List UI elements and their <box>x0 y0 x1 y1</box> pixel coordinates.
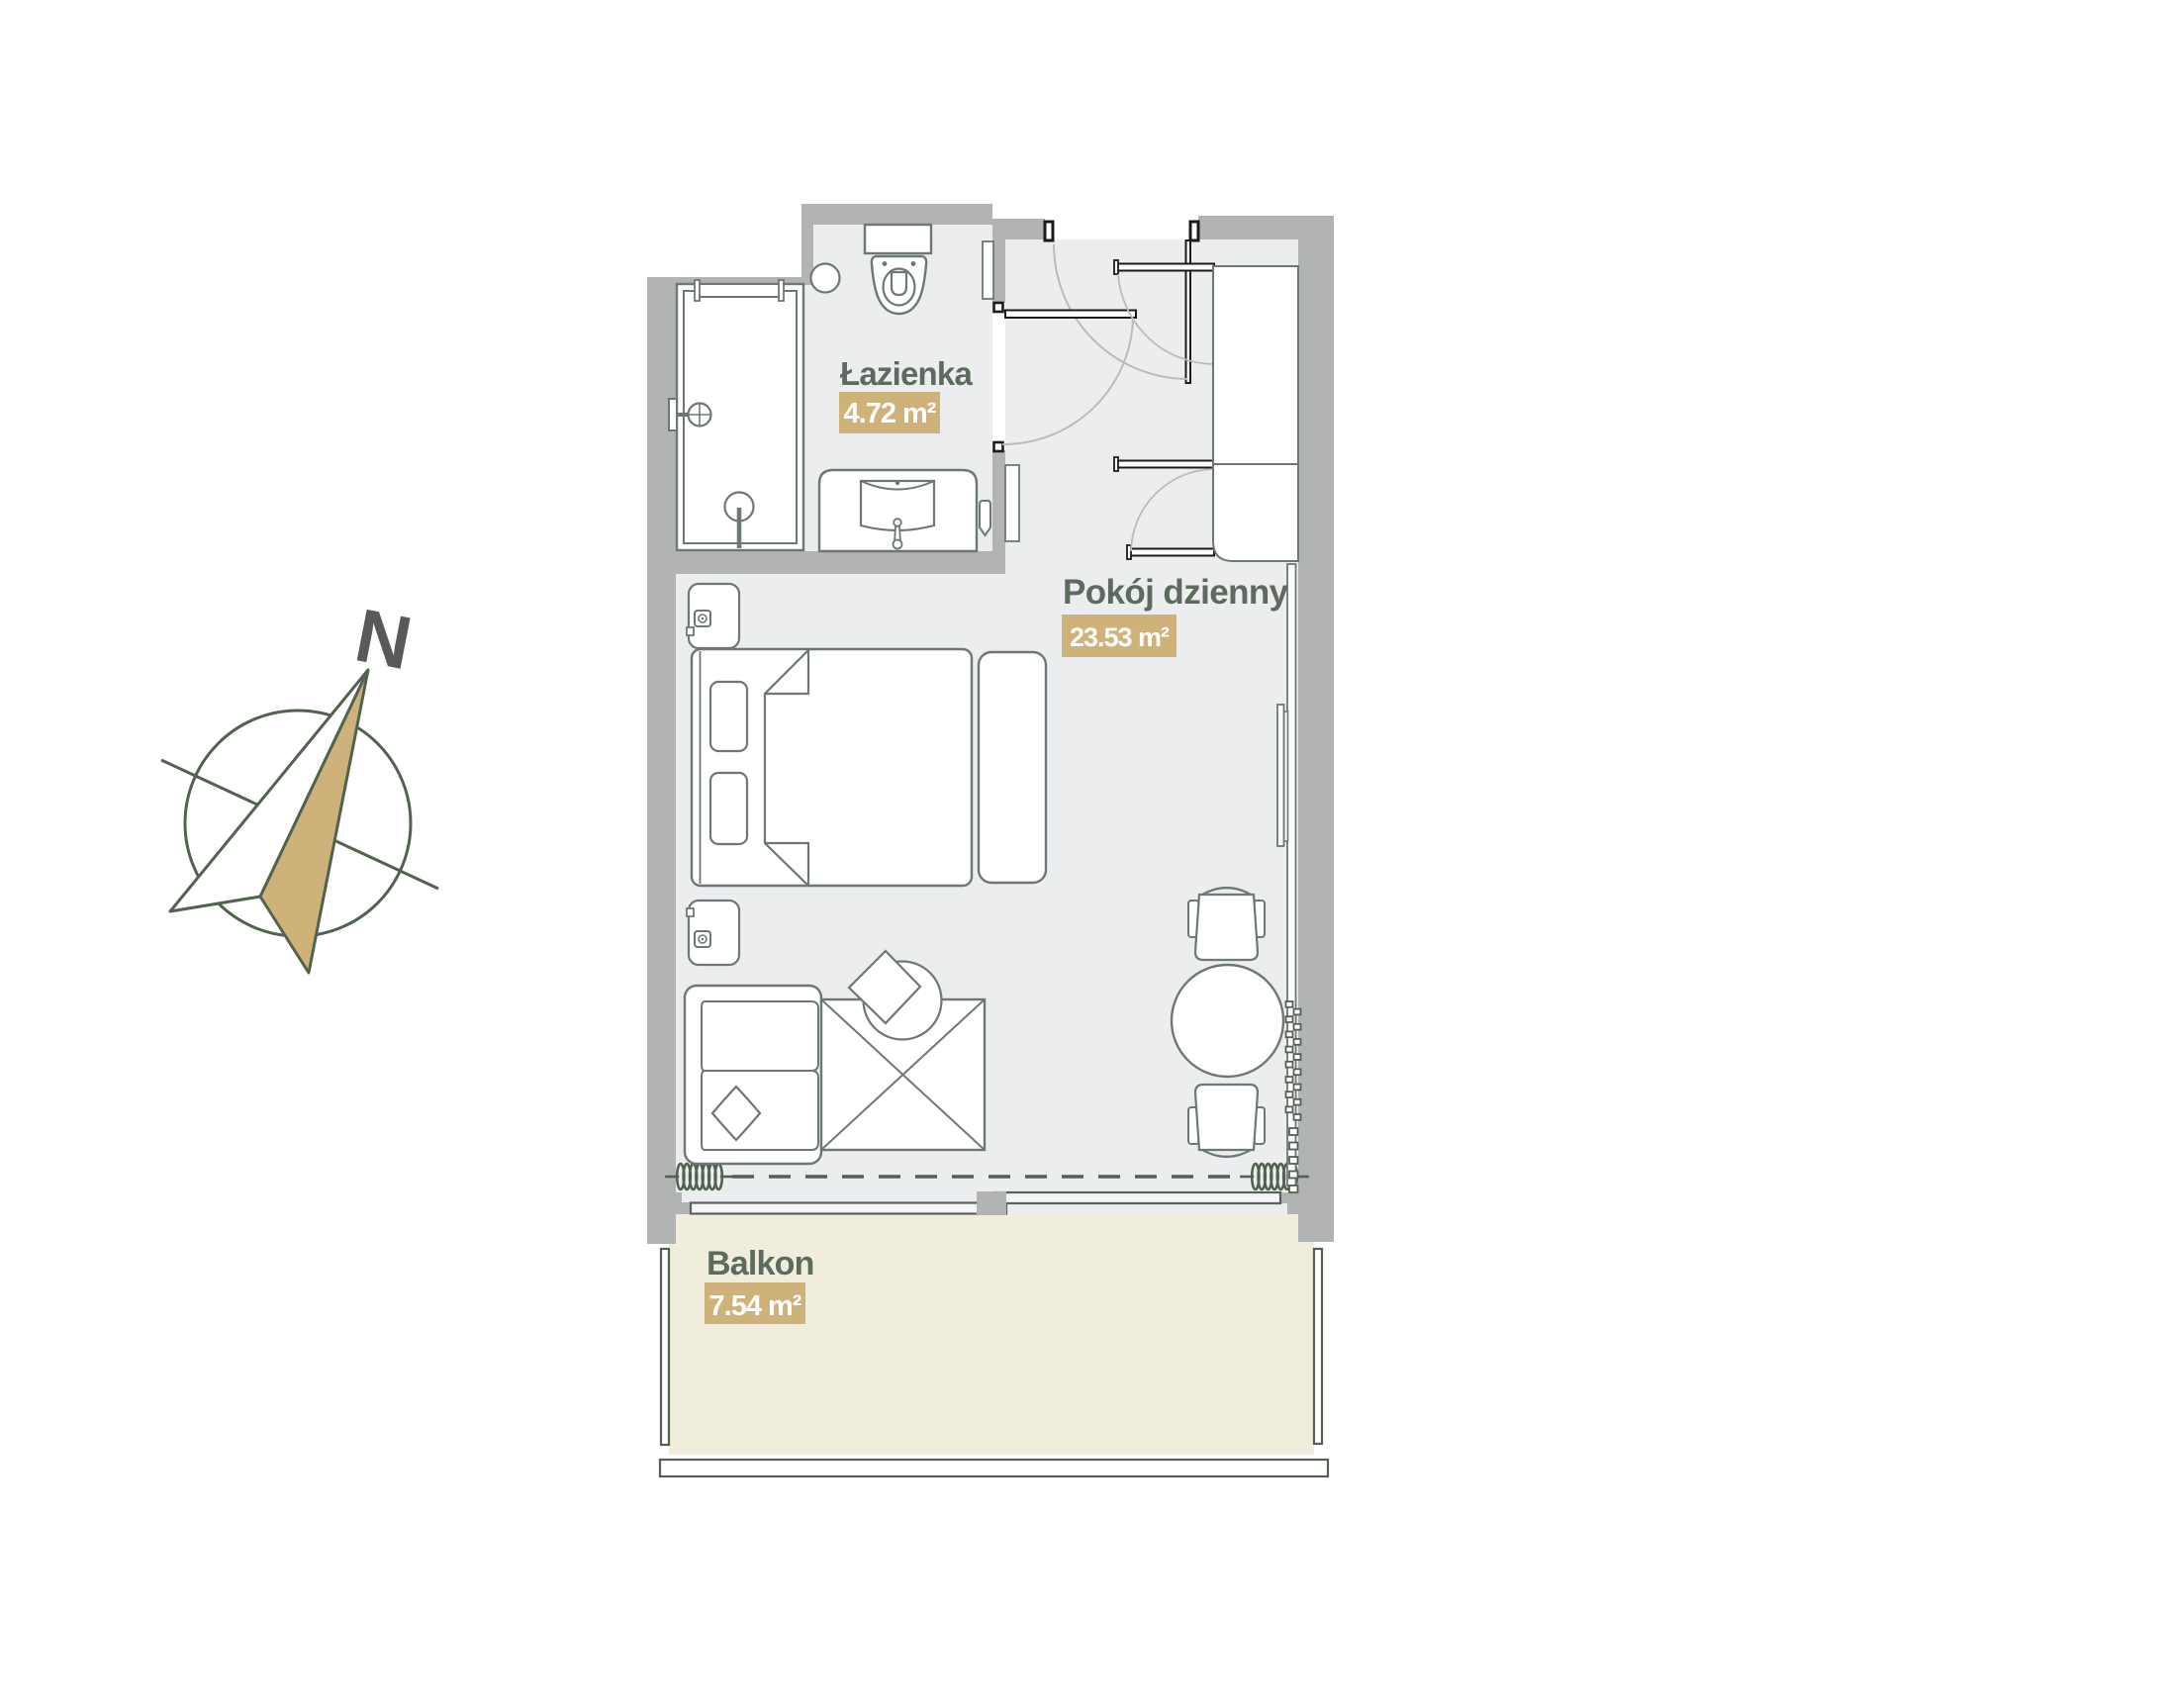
svg-text:4.72 m²: 4.72 m² <box>844 398 937 429</box>
svg-text:Pokój dzienny: Pokój dzienny <box>1063 573 1289 612</box>
svg-text:Łazienka: Łazienka <box>840 355 973 392</box>
svg-text:23.53 m²: 23.53 m² <box>1070 622 1170 652</box>
svg-text:Balkon: Balkon <box>706 1245 814 1282</box>
svg-text:7.54 m²: 7.54 m² <box>709 1290 802 1322</box>
